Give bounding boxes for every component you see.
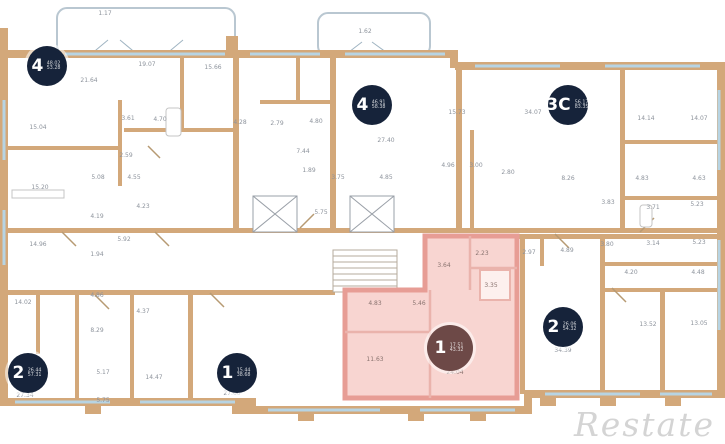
badge-room-count: 1 <box>434 340 446 357</box>
room-area-label: 4.96 <box>441 163 454 169</box>
room-area-label: 5.08 <box>91 175 104 181</box>
apartment-badge-2-bottom-left[interactable]: 2 26.44 57.31 <box>8 353 48 393</box>
room-area-label: 5.23 <box>690 202 703 208</box>
room-area-label: 2.97 <box>522 250 535 256</box>
room-area-label: 2.59 <box>119 153 132 159</box>
room-area-label: 34.39 <box>554 348 571 354</box>
badge-area-total: 53.28 <box>47 66 61 71</box>
room-area-label: 7.44 <box>296 149 309 155</box>
badge-area-total: 43.32 <box>450 348 464 353</box>
room-area-label: 1.89 <box>302 168 315 174</box>
room-area-label: 4.63 <box>692 176 705 182</box>
room-area-label: 14.96 <box>29 242 46 248</box>
room-area-label: 3.64 <box>437 263 450 269</box>
room-area-label: 5.46 <box>412 301 425 307</box>
room-area-label: 2.79 <box>270 121 283 127</box>
badge-areas: 15.44 38.68 <box>237 368 251 378</box>
restate-watermark: Restate <box>574 405 715 444</box>
room-area-label: 19.07 <box>138 62 155 68</box>
room-area-label: 1.62 <box>358 29 371 35</box>
room-area-label: 14.47 <box>145 375 162 381</box>
room-area-label: 15.20 <box>31 185 48 191</box>
badge-area-total: 57.31 <box>28 373 42 378</box>
room-area-label: 14.07 <box>690 116 707 122</box>
badge-areas: 46.91 58.38 <box>372 100 386 110</box>
room-area-label: 3.80 <box>600 242 613 248</box>
room-area-label: 5.92 <box>117 237 130 243</box>
badge-areas: 48.02 53.28 <box>47 61 61 71</box>
room-area-label: 4.48 <box>691 270 704 276</box>
room-area-label: 3.83 <box>601 200 614 206</box>
badge-room-count: 4 <box>356 97 368 114</box>
badge-areas: 56.17 83.35 <box>574 100 588 110</box>
room-area-label: 14.02 <box>14 300 31 306</box>
room-area-label: 8.26 <box>561 176 574 182</box>
room-area-label: 4.37 <box>136 309 149 315</box>
room-area-label: 3.75 <box>331 175 344 181</box>
room-area-label: 3.71 <box>646 205 659 211</box>
badge-areas: 17.51 43.32 <box>450 343 464 353</box>
badge-room-count: 4 <box>31 58 43 75</box>
badge-areas: 26.06 54.32 <box>563 322 577 332</box>
floor-plan: 1.17 1.62 21.64 19.07 15.66 15.04 3.61 4… <box>0 0 725 444</box>
room-area-label: 4.83 <box>635 176 648 182</box>
badge-area-total: 83.35 <box>574 105 588 110</box>
room-area-label: 4.55 <box>127 175 140 181</box>
room-area-label: 27.34 <box>16 393 33 399</box>
room-area-label: 5.17 <box>96 370 109 376</box>
room-area-label: 3.14 <box>646 241 659 247</box>
badge-room-count: 3C <box>546 97 570 114</box>
room-area-label: 4.28 <box>233 120 246 126</box>
room-area-label: 4.20 <box>624 270 637 276</box>
room-area-label: 11.63 <box>366 357 383 363</box>
room-area-label: 4.89 <box>560 248 573 254</box>
room-area-label: 4.83 <box>368 301 381 307</box>
room-area-label: 4.70 <box>153 117 166 123</box>
room-area-label: 3.61 <box>121 116 134 122</box>
room-area-label: 15.66 <box>204 65 221 71</box>
apartment-badge-4-top-left[interactable]: 4 48.02 53.28 <box>27 46 67 86</box>
room-area-label: 15.73 <box>448 110 465 116</box>
badge-area-total: 54.32 <box>563 327 577 332</box>
badge-room-count: 2 <box>12 365 24 382</box>
room-area-label: 2.80 <box>501 170 514 176</box>
room-area-label: 21.64 <box>80 78 97 84</box>
room-area-label: 14.14 <box>637 116 654 122</box>
apartment-badge-4-center[interactable]: 4 46.91 58.38 <box>352 85 392 125</box>
badge-room-count: 1 <box>221 365 233 382</box>
apartment-badge-2-bottom-right[interactable]: 2 26.06 54.32 <box>543 307 583 347</box>
room-area-label: 13.52 <box>639 322 656 328</box>
room-area-label: 1.94 <box>90 252 103 258</box>
room-area-label: 2.23 <box>475 251 488 257</box>
room-area-label: 5.75 <box>96 398 109 404</box>
apartment-badge-3c-right[interactable]: 3C 56.17 83.35 <box>548 85 588 125</box>
room-area-label: 4.19 <box>90 214 103 220</box>
room-area-label: 34.07 <box>524 110 541 116</box>
badge-area-total: 58.38 <box>372 105 386 110</box>
room-area-label: 5.23 <box>692 240 705 246</box>
room-area-label: 4.85 <box>379 175 392 181</box>
apartment-badge-1-bottom-center[interactable]: 1 15.44 38.68 <box>217 353 257 393</box>
room-area-label: 3.00 <box>469 163 482 169</box>
room-area-label: 5.75 <box>314 210 327 216</box>
badge-room-count: 2 <box>547 319 559 336</box>
apartment-badge-1-selected[interactable]: 1 17.51 43.32 <box>427 325 473 371</box>
room-area-label: 1.17 <box>98 11 111 17</box>
room-area-label: 4.80 <box>309 119 322 125</box>
room-area-label: 15.04 <box>29 125 46 131</box>
room-area-label: 4.23 <box>136 204 149 210</box>
room-area-label: 13.05 <box>690 321 707 327</box>
room-area-label: 4.86 <box>90 293 103 299</box>
room-area-label: 8.29 <box>90 328 103 334</box>
balcony-outlines <box>57 8 430 56</box>
badge-area-total: 38.68 <box>237 373 251 378</box>
staircase <box>333 250 397 292</box>
floor-plan-drawing <box>0 0 725 444</box>
room-area-label: 27.40 <box>377 138 394 144</box>
badge-areas: 26.44 57.31 <box>28 368 42 378</box>
room-area-label: 3.35 <box>484 283 497 289</box>
